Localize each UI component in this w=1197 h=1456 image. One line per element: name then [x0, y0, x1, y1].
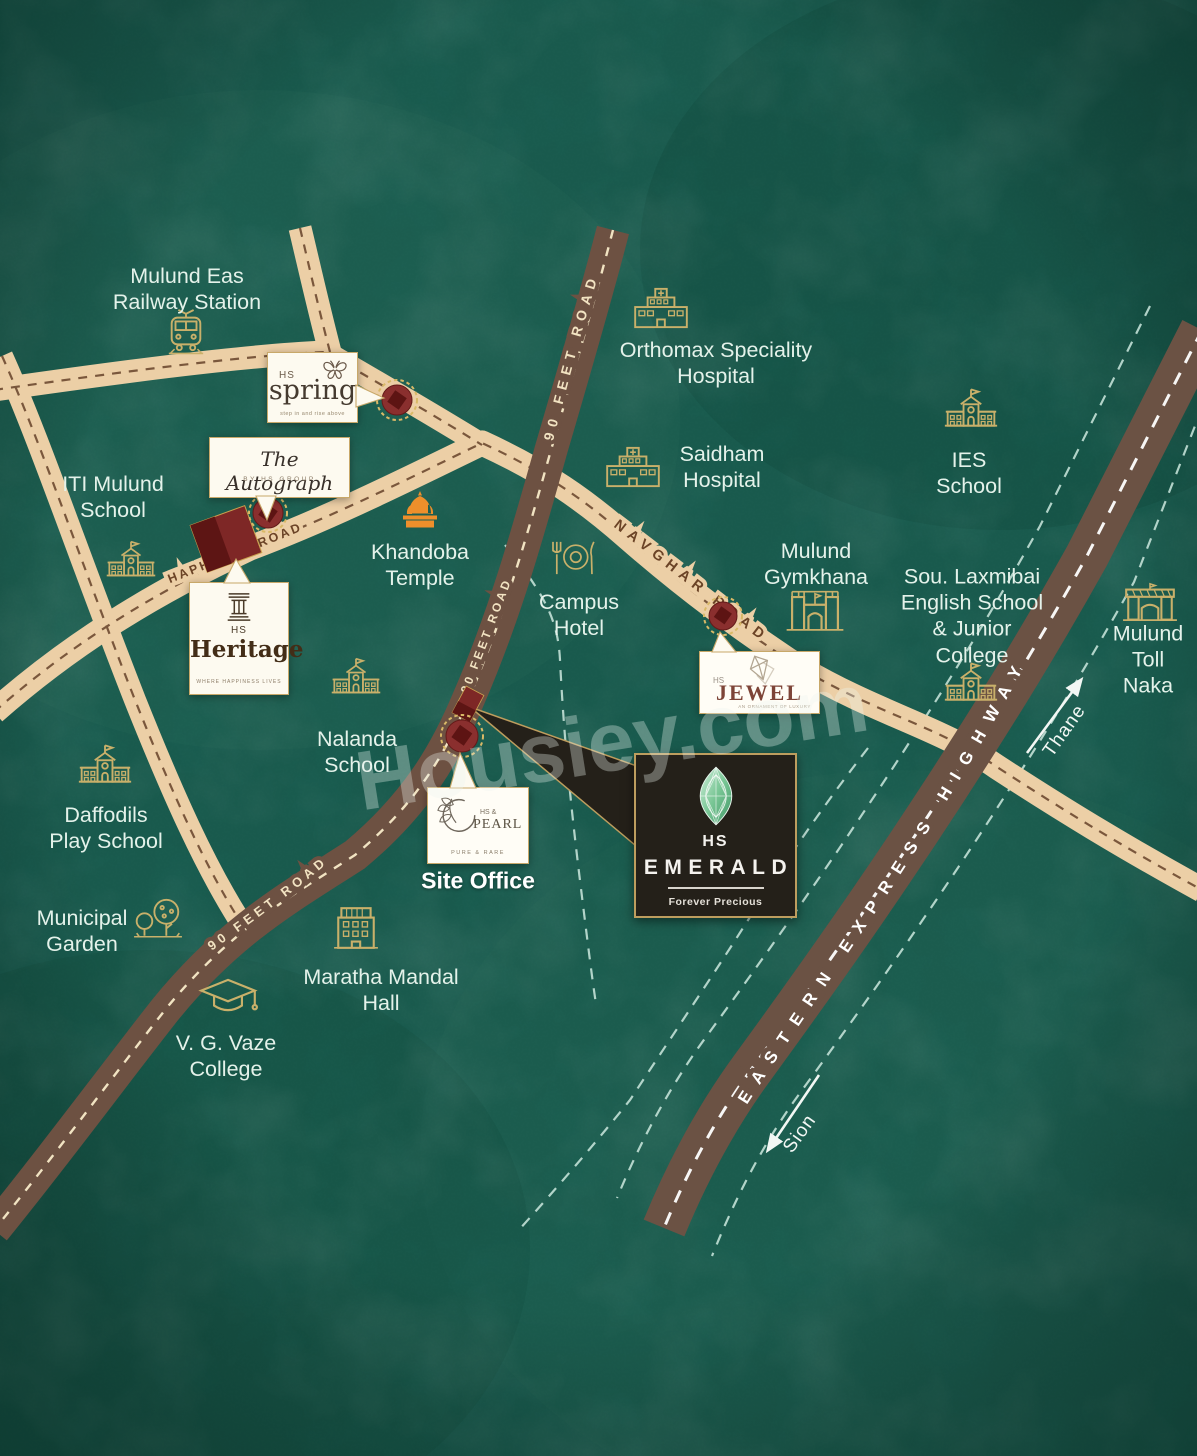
map-background — [0, 0, 1197, 1456]
location-map: 90 FEET ROAD 90 FEET ROAD 90 FEET ROAD H… — [0, 0, 1197, 1456]
map-canvas: 90 FEET ROAD 90 FEET ROAD 90 FEET ROAD H… — [0, 0, 1197, 1456]
